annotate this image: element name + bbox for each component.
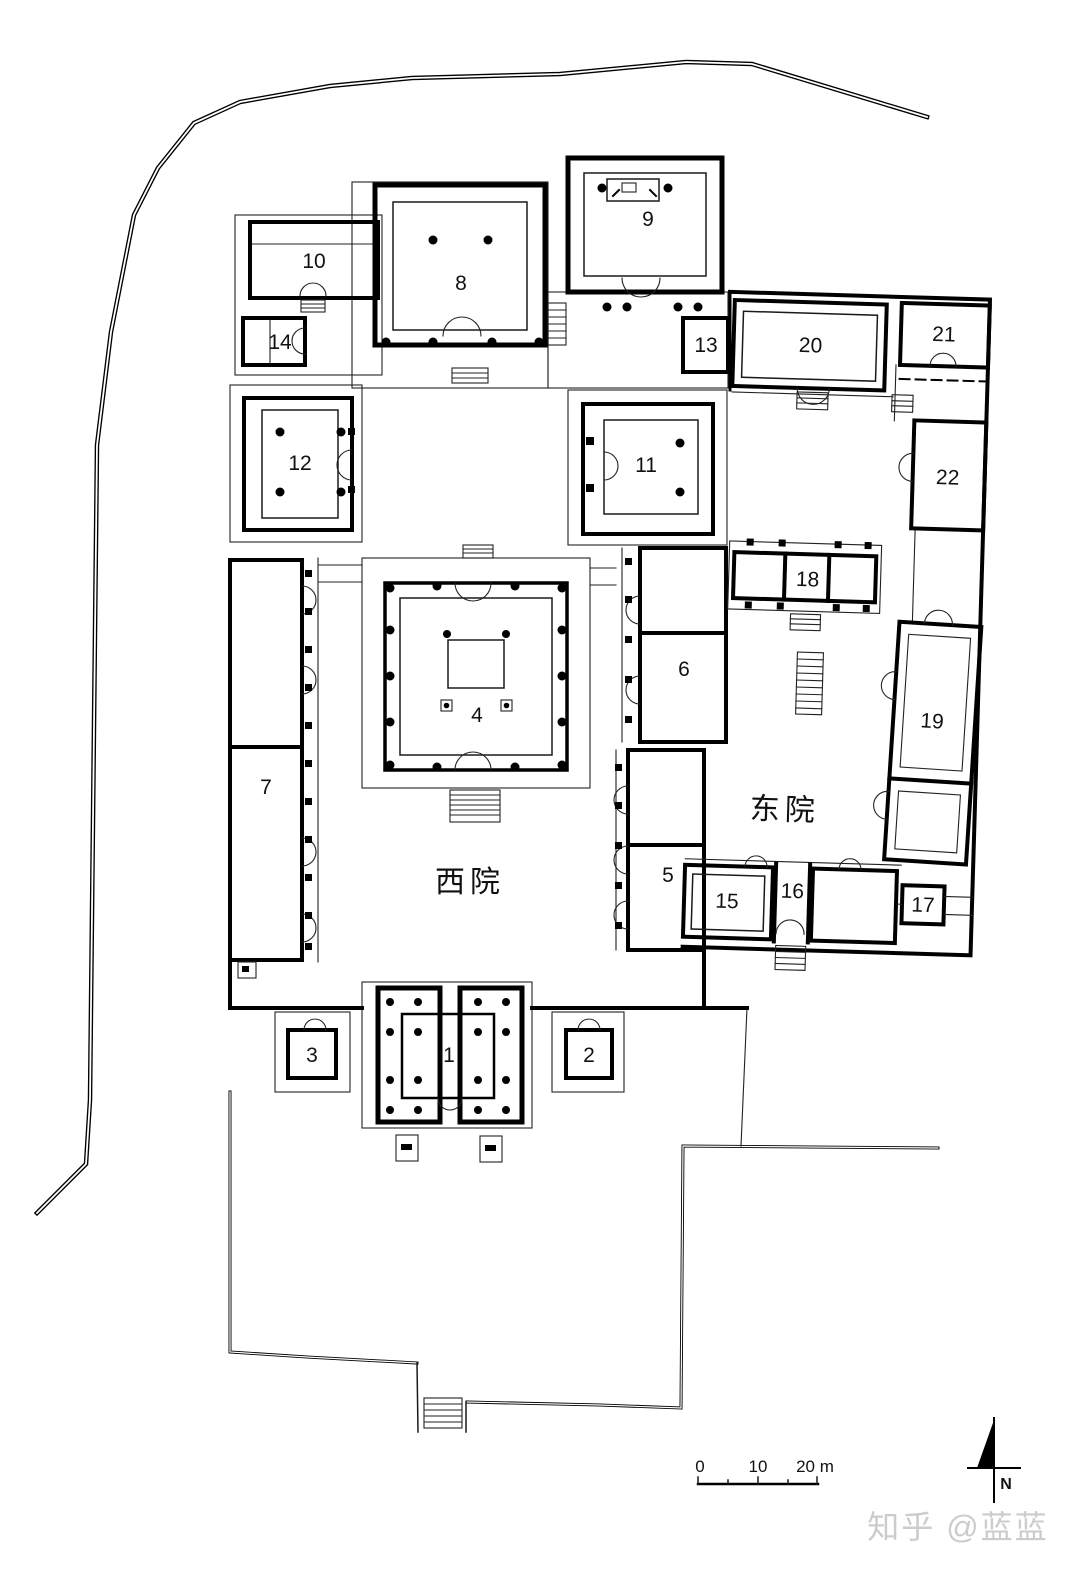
room11-gallery-column [586, 437, 594, 445]
room19-walls [884, 622, 981, 865]
pavilion-inner-wall [400, 598, 552, 755]
room12-column [276, 488, 285, 497]
room10-stairs-treads [301, 304, 325, 308]
forecourt-connector-wall [741, 1008, 747, 1146]
room12-column [337, 428, 346, 437]
forecourt-south-gate [417, 1363, 466, 1432]
north-arrow-icon: N [968, 1418, 1020, 1502]
room-3: 3 [288, 1019, 336, 1078]
room10-stairs [301, 300, 325, 312]
room9-porch-column [694, 303, 703, 312]
room11-gallery-column [586, 484, 594, 492]
room9-altar-object [622, 183, 636, 192]
south-room-walls [811, 869, 897, 943]
gate-stairs [424, 1398, 462, 1428]
room-12: 12 [244, 398, 355, 530]
room8-porch-column [429, 338, 438, 347]
pavilion-column [558, 718, 567, 727]
room8-stairs-treads [452, 373, 488, 378]
room9-column [598, 184, 607, 193]
hall8-terrace [352, 182, 548, 388]
room11-column [676, 439, 685, 448]
room-18: 18 [727, 538, 882, 632]
room-label-15: 15 [715, 890, 739, 914]
forecourt-wall-west-south-inner [230, 1092, 417, 1363]
west-gallery-columns [305, 570, 312, 950]
room-label-22: 22 [936, 466, 960, 490]
room-label-6: 6 [678, 658, 690, 681]
room19-inner-lower [895, 791, 961, 853]
room16-stairs-treads [775, 951, 805, 964]
room8-porch-column [382, 338, 391, 347]
pavilion-column [386, 672, 395, 681]
room-label-10: 10 [302, 250, 325, 273]
room-2: 2 [566, 1019, 612, 1078]
room8-column [429, 236, 438, 245]
pavilion-column [433, 582, 442, 591]
east-wing-upper-walls [640, 548, 726, 742]
stele-mark [401, 1144, 412, 1150]
south-walls [230, 950, 747, 1008]
pavilion-column [386, 626, 395, 635]
room8-column [484, 236, 493, 245]
pavilion-column [433, 763, 442, 772]
pavilion-column [386, 584, 395, 593]
forecourt-wall-west-south [230, 1092, 417, 1363]
room9-altar-marks [613, 190, 656, 196]
room9-porch-column [674, 303, 683, 312]
stele-mark [485, 1145, 496, 1151]
platform-south-stairs-treads [450, 795, 500, 815]
room8-porch-column [535, 338, 544, 347]
pavilion-column [386, 761, 395, 770]
pavilion-column [558, 626, 567, 635]
room8-walls [375, 185, 545, 345]
gate1-east-block [460, 988, 522, 1122]
room-11: 11 [583, 404, 713, 534]
room9-porch-column [623, 303, 632, 312]
east-courtyard-label: 东院 [749, 793, 820, 828]
room-label-12: 12 [288, 452, 311, 475]
pavilion-column [558, 761, 567, 770]
pavilion-column [558, 584, 567, 593]
scale-label-10: 10 [749, 1457, 768, 1476]
room-label-9: 9 [642, 208, 654, 231]
room18-stairs-treads [790, 619, 820, 625]
east-annex: 20 21 22 18 [682, 291, 991, 975]
room12-gallery-column [348, 486, 355, 493]
annex-corridor-sill [900, 379, 988, 382]
room-label-7: 7 [260, 776, 272, 799]
west-complex: 10 14 8 [230, 158, 747, 1162]
upper-court-stairs-treads [548, 310, 566, 338]
west-courtyard-label: 西院 [435, 866, 505, 899]
north-arrow-head [977, 1420, 994, 1468]
room-22: 22 [897, 420, 986, 531]
room-label-1: 1 [443, 1044, 455, 1067]
room-label-19: 19 [920, 709, 945, 733]
east-wing-lower-walls [628, 750, 704, 950]
room18-stairs [790, 614, 820, 631]
room8-porch-column [488, 338, 497, 347]
room8-door-arcs [443, 317, 481, 336]
room-label-2: 2 [583, 1044, 595, 1067]
room-21: 21 [900, 303, 990, 368]
forecourt-wall-east [467, 1146, 938, 1408]
room-4-pavilion: 4 [385, 545, 567, 822]
pavilion-altar [448, 640, 504, 688]
platform-north-stairs [463, 545, 493, 558]
room9-porch-column [603, 303, 612, 312]
boundary-wall-path [37, 62, 927, 1213]
pavilion-column [558, 672, 567, 681]
room-16-gate: 16 [773, 863, 810, 970]
room-9: 9 [568, 158, 722, 312]
room-label-5: 5 [662, 864, 674, 887]
room-label-11: 11 [635, 454, 657, 477]
site-boundary-wall [37, 62, 927, 1213]
platform-north-stairs-treads [463, 549, 493, 553]
pavilion-platform [362, 558, 590, 788]
pavilion-column [511, 582, 520, 591]
scale-label-0: 0 [695, 1457, 704, 1476]
room-19: 19 [870, 607, 982, 865]
room10-enclosure [235, 215, 382, 375]
pavilion-colonnade [385, 583, 567, 770]
room10-door-arcs [300, 283, 326, 296]
room-20: 20 [732, 300, 916, 412]
corner-marker [242, 966, 249, 972]
room-label-4: 4 [471, 704, 483, 727]
room-label-21: 21 [932, 323, 956, 347]
room-14: 14 [243, 318, 305, 365]
room9-column [664, 184, 673, 193]
pavilion-column [386, 718, 395, 727]
room8-terrace-stairs [452, 368, 488, 383]
room16-walls [774, 863, 810, 942]
gate1-west-block [378, 988, 440, 1122]
pavilion-column [511, 763, 520, 772]
room-label-14: 14 [268, 331, 292, 354]
room19-divider [889, 778, 971, 783]
stele-markers [396, 1135, 502, 1162]
room-label-20: 20 [799, 334, 823, 358]
room-label-18: 18 [796, 568, 820, 592]
room8-inner-walls [393, 202, 527, 330]
scale-bar: 0 10 20 m [695, 1457, 834, 1484]
east-wing: 6 5 [614, 548, 726, 950]
room-13: 13 [683, 318, 728, 372]
gate-stairs-treads [424, 1404, 462, 1422]
room-label-3: 3 [306, 1044, 318, 1067]
north-label: N [1000, 1476, 1012, 1493]
scale-label-20m: 20 m [796, 1457, 834, 1476]
altar-column [502, 630, 510, 638]
courtyard-stairs-treads [796, 659, 823, 709]
west-wing-walls [230, 560, 302, 960]
west-wing: 7 [230, 560, 316, 978]
altar-base-dot [444, 703, 450, 709]
room-unlabeled-south [811, 858, 897, 943]
room-label-13: 13 [694, 334, 717, 357]
floor-plan-page: 10 14 8 [0, 0, 1080, 1580]
altar-base-dot [504, 703, 510, 709]
room-1-main-gate: 1 [378, 988, 522, 1122]
temple-floor-plan: 10 14 8 [0, 0, 1080, 1580]
room-label-8: 8 [455, 272, 467, 295]
watermark: 知乎 @蓝蓝 [867, 1509, 1048, 1545]
room16-door-arcs [776, 920, 804, 935]
forecourt-wall-east-inner [467, 1146, 938, 1408]
room-label-16: 16 [780, 880, 804, 904]
room-15: 15 [683, 854, 773, 940]
courtyard-stairs [796, 652, 824, 715]
room12-column [276, 428, 285, 437]
boundary-wall-inner-line [37, 62, 927, 1213]
room-8: 8 [375, 185, 545, 383]
room11-column [676, 488, 685, 497]
room12-door-arcs [337, 450, 352, 480]
room-label-17: 17 [911, 894, 935, 918]
room12-column [337, 488, 346, 497]
room11-door-arcs [604, 452, 618, 480]
room12-gallery-column [348, 428, 355, 435]
room19-inner-upper [900, 634, 970, 771]
room-10: 10 [250, 222, 378, 312]
annex-corridor-lines [685, 359, 920, 865]
altar-column [443, 630, 451, 638]
room-17: 17 [895, 885, 972, 925]
